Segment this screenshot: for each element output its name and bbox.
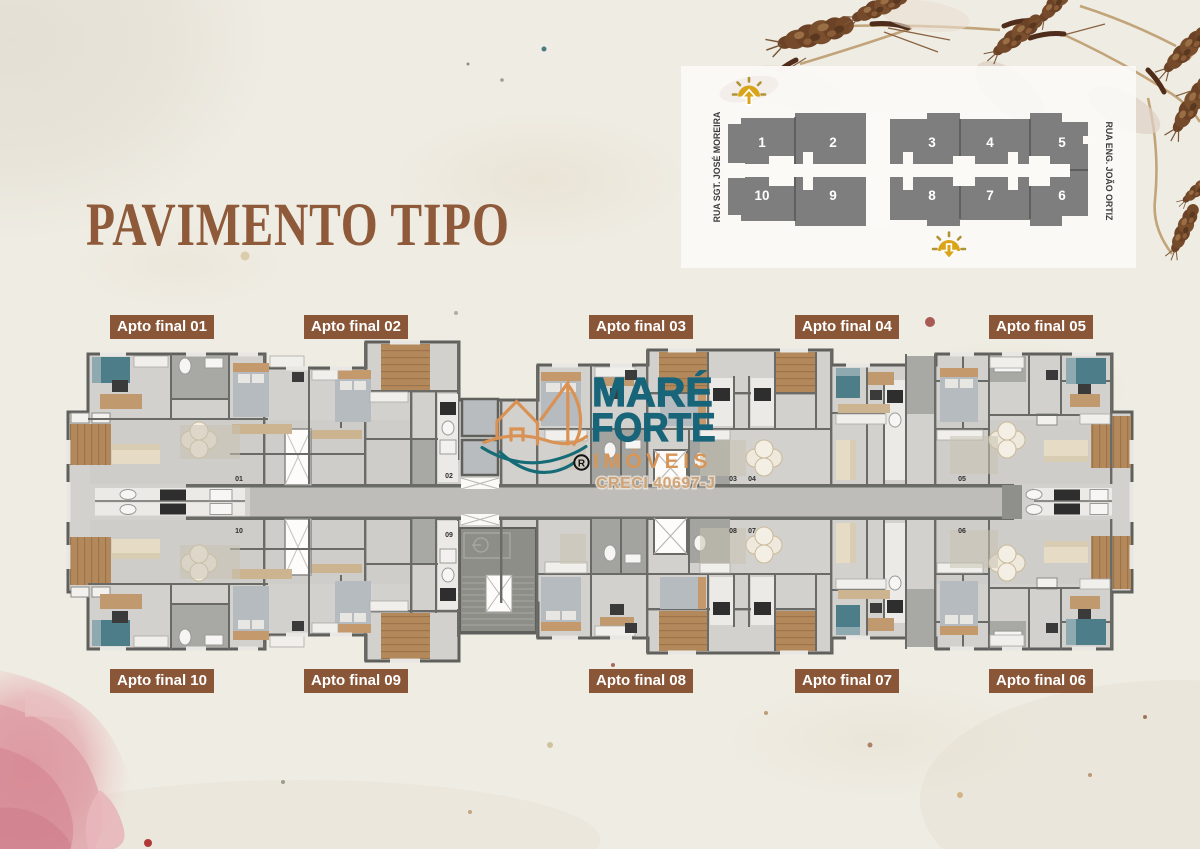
svg-text:09: 09 [445, 532, 453, 539]
svg-text:IMÓVEIS: IMÓVEIS [593, 449, 712, 473]
svg-text:RUA ENG. JOÃO ORTIZ: RUA ENG. JOÃO ORTIZ [1104, 122, 1114, 222]
svg-text:6: 6 [1058, 188, 1066, 203]
svg-text:06: 06 [958, 528, 966, 535]
svg-text:4: 4 [986, 135, 994, 150]
svg-text:01: 01 [235, 476, 243, 483]
svg-text:R: R [578, 459, 586, 470]
svg-text:5: 5 [1058, 135, 1066, 150]
svg-text:2: 2 [829, 135, 837, 150]
svg-text:7: 7 [986, 188, 994, 203]
svg-text:05: 05 [958, 476, 966, 483]
svg-text:07: 07 [748, 528, 756, 535]
svg-text:03: 03 [729, 476, 737, 483]
svg-text:04: 04 [748, 476, 756, 483]
svg-text:02: 02 [445, 473, 453, 480]
svg-text:1: 1 [758, 135, 766, 150]
svg-text:10: 10 [235, 528, 243, 535]
svg-text:08: 08 [729, 528, 737, 535]
svg-text:FORTE: FORTE [591, 406, 716, 451]
svg-text:3: 3 [928, 135, 936, 150]
svg-text:RUA SGT. JOSÉ MOREIRA: RUA SGT. JOSÉ MOREIRA [712, 111, 722, 222]
svg-text:10: 10 [754, 188, 769, 203]
svg-text:9: 9 [829, 188, 837, 203]
svg-text:8: 8 [928, 188, 936, 203]
svg-text:CRECI 40697-J: CRECI 40697-J [596, 475, 715, 492]
